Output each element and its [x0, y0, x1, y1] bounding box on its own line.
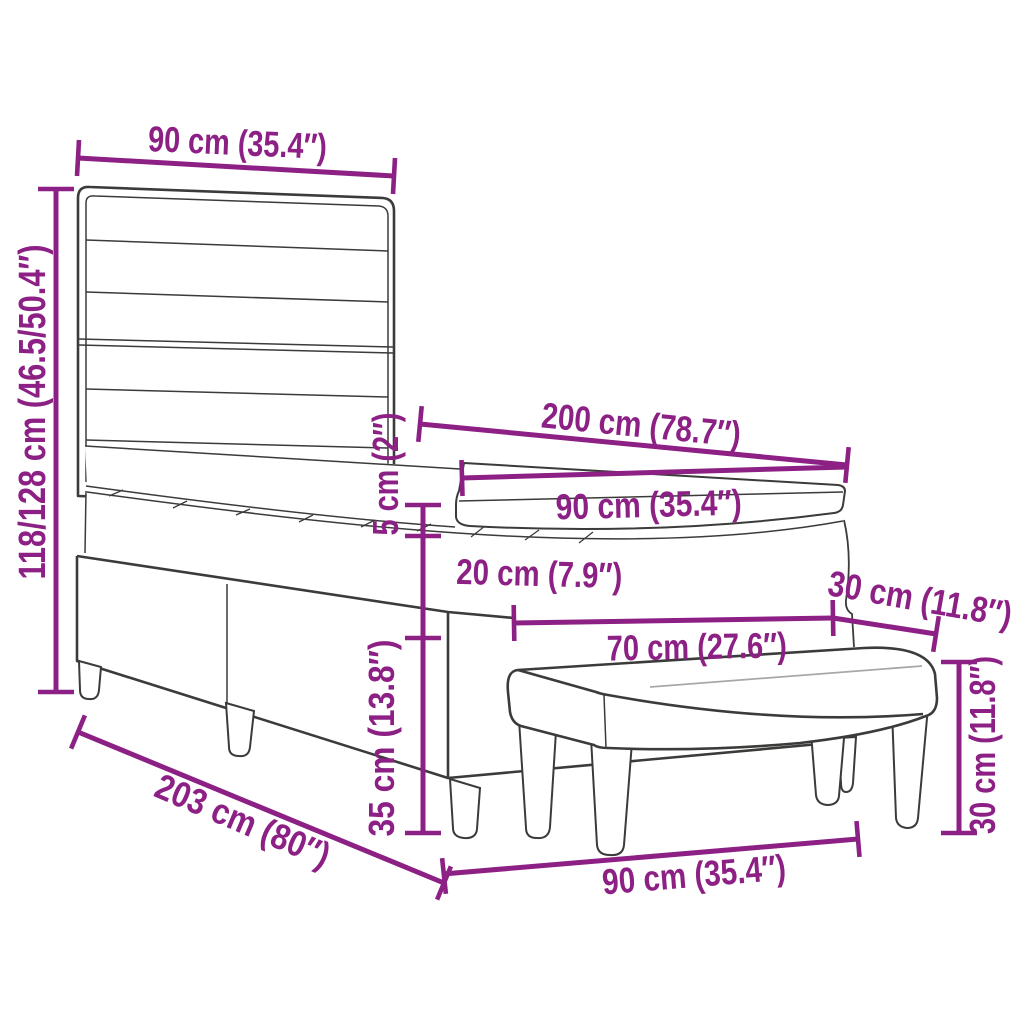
svg-text:118/128 cm (46.5/50.4″): 118/128 cm (46.5/50.4″): [12, 245, 54, 580]
svg-text:20 cm (7.9″): 20 cm (7.9″): [456, 551, 623, 596]
svg-text:35 cm (13.8″): 35 cm (13.8″): [361, 640, 402, 837]
svg-text:90 cm (35.4″): 90 cm (35.4″): [147, 118, 328, 167]
svg-text:90 cm (35.4″): 90 cm (35.4″): [555, 482, 742, 528]
svg-text:30 cm (11.8″): 30 cm (11.8″): [962, 656, 1003, 834]
svg-text:70 cm (27.6″): 70 cm (27.6″): [606, 624, 787, 668]
svg-text:5 cm (2″): 5 cm (2″): [365, 413, 406, 536]
